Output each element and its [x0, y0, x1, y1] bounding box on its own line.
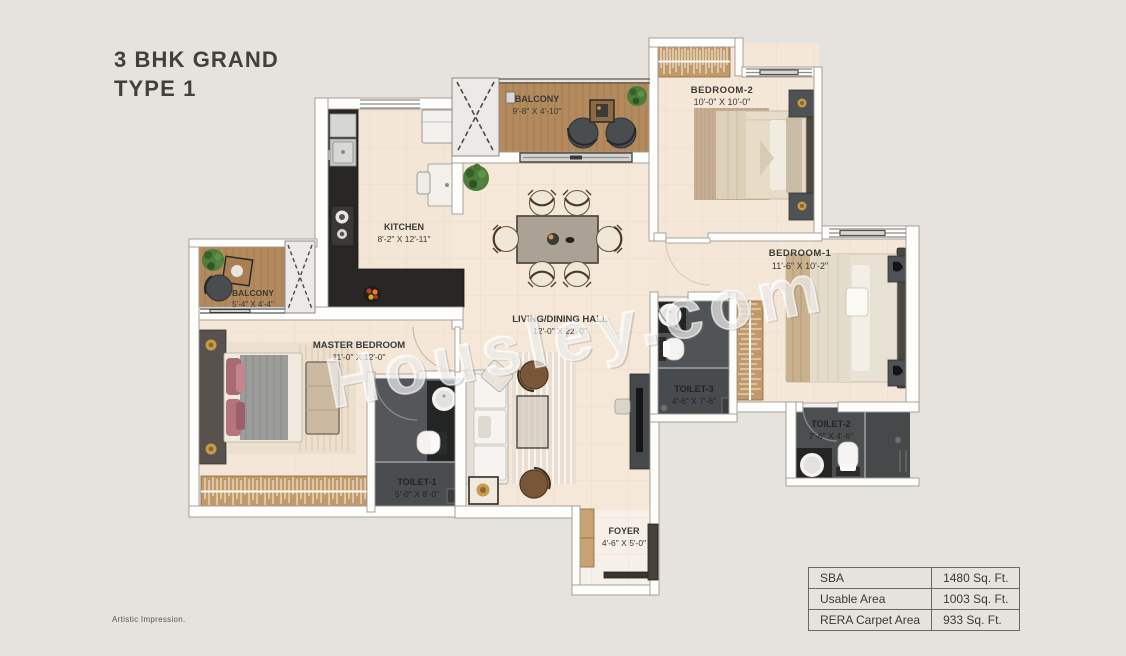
svg-text:KITCHEN: KITCHEN [384, 222, 424, 232]
svg-text:7'-6" X 4'-6": 7'-6" X 4'-6" [809, 431, 853, 441]
svg-text:5'-0" X 8'-0": 5'-0" X 8'-0" [395, 489, 439, 499]
svg-text:4'-6" X 5'-0": 4'-6" X 5'-0" [602, 538, 646, 548]
svg-text:BALCONY: BALCONY [515, 94, 560, 104]
svg-text:FOYER: FOYER [608, 526, 640, 536]
svg-text:BALCONY: BALCONY [232, 288, 274, 298]
svg-text:TOILET-3: TOILET-3 [674, 384, 713, 394]
svg-text:9'-8" X 4'-10": 9'-8" X 4'-10" [513, 106, 562, 116]
svg-text:10'-0" X 10'-0": 10'-0" X 10'-0" [694, 97, 751, 107]
svg-text:TOILET-1: TOILET-1 [397, 477, 436, 487]
svg-text:4'-6" X 7'-6": 4'-6" X 7'-6" [672, 396, 716, 406]
svg-text:5'-4" X 4'-4": 5'-4" X 4'-4" [232, 300, 274, 309]
svg-text:BEDROOM-2: BEDROOM-2 [691, 85, 754, 96]
svg-text:8'-2" X 12'-11": 8'-2" X 12'-11" [377, 234, 430, 244]
svg-text:TOILET-2: TOILET-2 [811, 419, 850, 429]
